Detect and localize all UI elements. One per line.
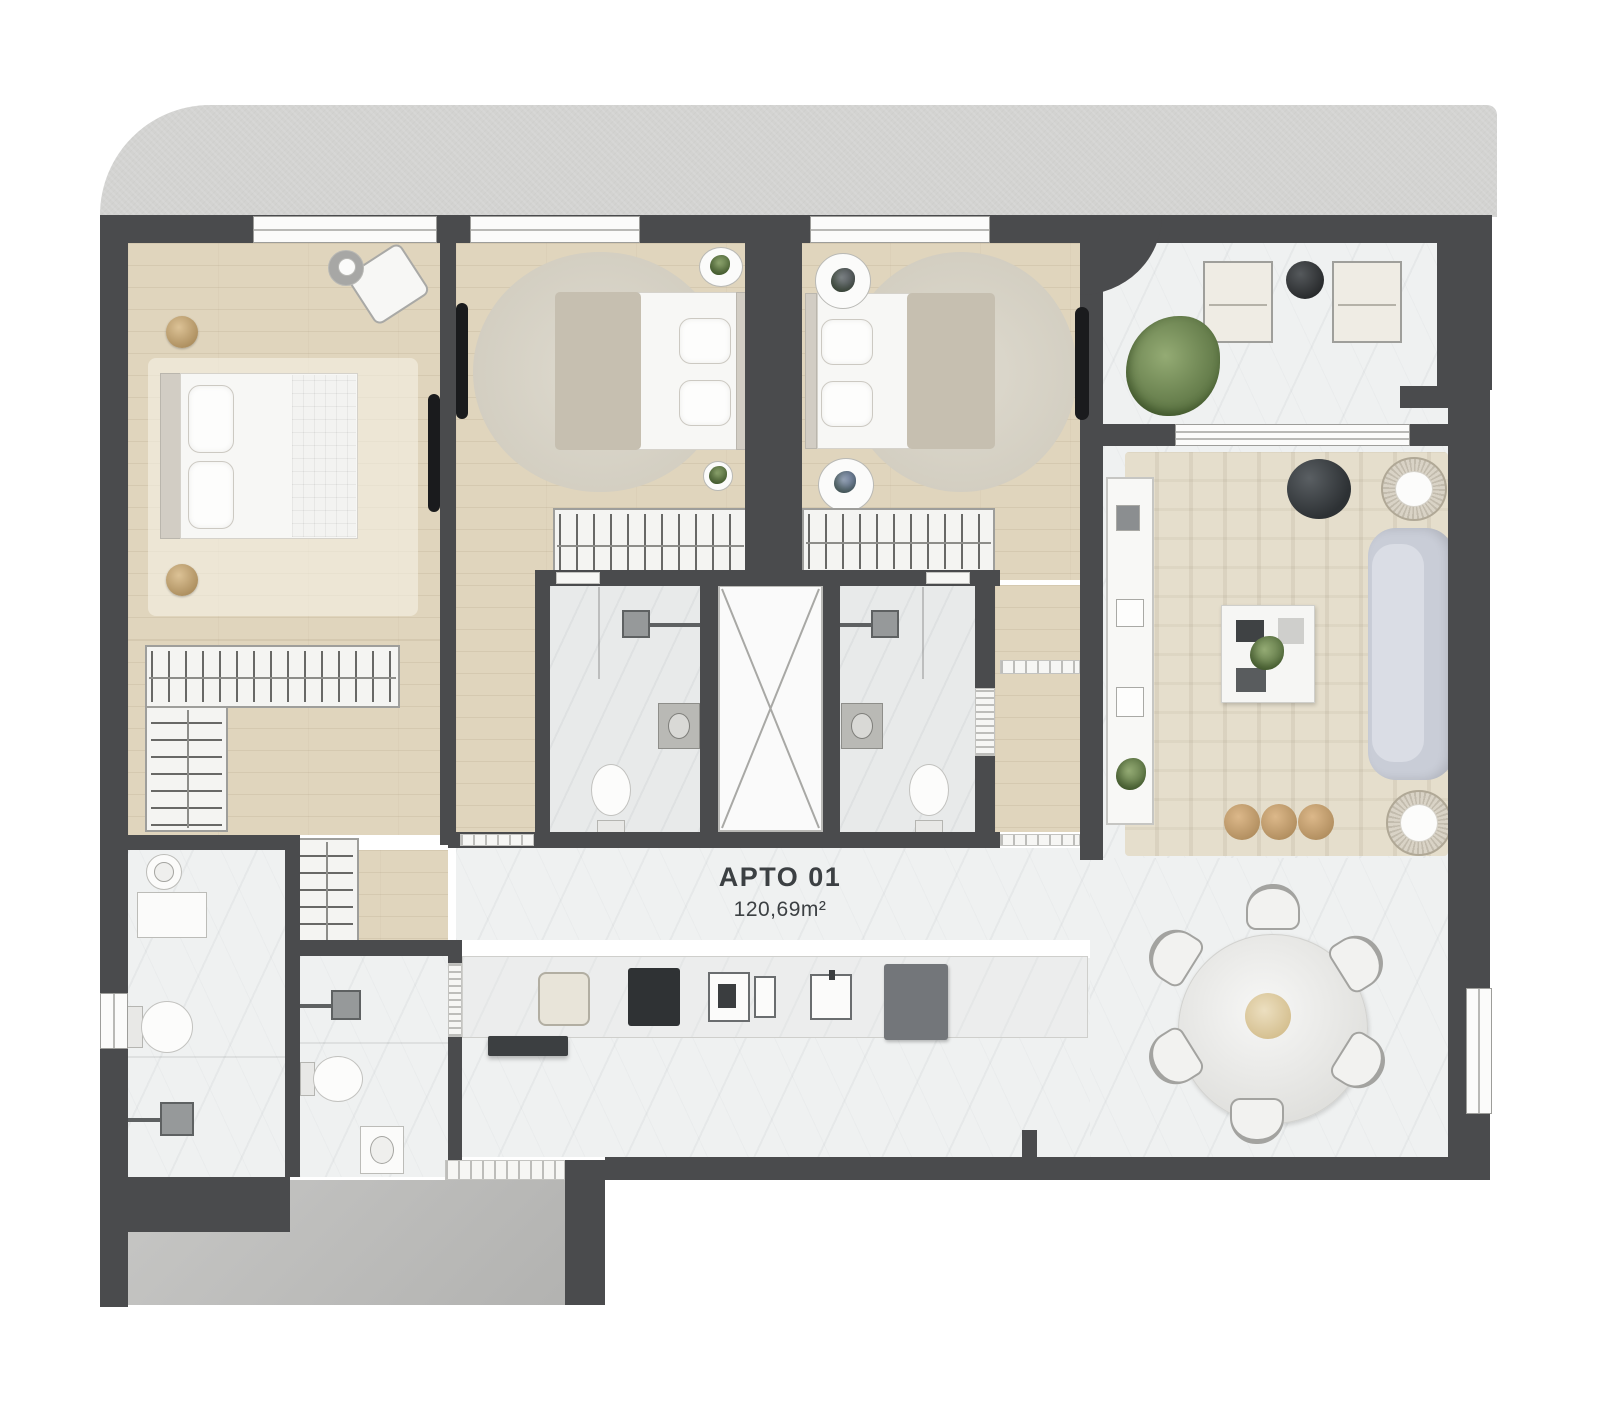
book-stack: [1236, 668, 1266, 692]
console-item: [1116, 505, 1140, 531]
pouf: [1298, 804, 1334, 840]
bedroom2-bed: [553, 292, 748, 450]
pillow: [188, 461, 234, 529]
balcony-side-table: [1286, 261, 1324, 299]
wall-balcony-right: [1437, 215, 1492, 390]
ensuite3-toilet: [906, 764, 952, 836]
bedroom3-wardrobe: [802, 508, 995, 575]
sink-bowl: [154, 862, 174, 882]
wall-kitchen-left-lower: [448, 1035, 462, 1177]
bed-blanket: [555, 292, 641, 450]
pillow: [679, 318, 731, 364]
bedroom2-passage-floor: [456, 585, 535, 832]
apartment-area: 120,69m²: [620, 898, 940, 922]
table-centerpiece: [1245, 993, 1291, 1039]
apartment-title: APTO 01: [620, 862, 940, 893]
pillow: [821, 319, 873, 365]
wall-masterbath-right: [285, 850, 300, 1177]
bedroom2-door-leaf: [456, 303, 468, 419]
wall-bathroom2-top: [290, 940, 462, 956]
ensuite2-vanity: [658, 703, 700, 749]
pillow: [188, 385, 234, 453]
shower-head-icon: [871, 610, 899, 638]
hanger-rail: [557, 545, 744, 547]
ensuite2-toilet: [588, 764, 634, 836]
bathroom2-door: [448, 963, 462, 1037]
seat-line: [1209, 304, 1267, 306]
console-frame: [1116, 687, 1144, 717]
wall-master-bedroom2: [440, 215, 456, 845]
kitchen-shelf: [488, 1036, 568, 1056]
sofa: [1368, 528, 1454, 780]
wall-masterbath-bottom: [108, 1177, 290, 1232]
hanger-rail: [326, 842, 328, 944]
sink-bowl: [370, 1136, 394, 1164]
shower-arm: [300, 1004, 335, 1008]
master-bath-window: [100, 993, 128, 1049]
sink-bowl: [668, 713, 690, 739]
master-bath-vanity: [137, 892, 207, 938]
ensuite3-vanity: [841, 703, 883, 749]
seat-line: [1338, 304, 1396, 306]
cooktop-icon: [628, 968, 680, 1026]
master-bed-quilt: [292, 375, 356, 537]
wall-shaft-left: [700, 570, 718, 848]
door-track: [1176, 438, 1409, 440]
closet-wardrobe-side: [145, 706, 228, 832]
hall-wardrobe: [293, 838, 359, 948]
ensuite2-door: [556, 572, 600, 584]
apartment-floor-plan: APTO 01 120,69m²: [0, 0, 1600, 1409]
bedroom2-door-threshold: [460, 834, 534, 846]
console-item: [1116, 599, 1144, 627]
balcony-armchair: [1332, 261, 1402, 343]
hanger-rail: [149, 677, 396, 679]
bed-blanket: [907, 293, 995, 449]
master-bedroom-window: [253, 216, 437, 243]
shaft-cross-icon: [718, 585, 823, 832]
shower-arm: [128, 1118, 164, 1122]
oven: [708, 972, 750, 1022]
hanger-rail: [187, 710, 189, 828]
shower-glass: [922, 587, 924, 679]
balcony-sliding-door: [1175, 424, 1410, 446]
side-table-top: [338, 258, 356, 276]
pouf: [1224, 804, 1260, 840]
closet-wardrobe-top: [145, 645, 400, 708]
small-appliance: [754, 976, 776, 1018]
accent-chair: [1287, 459, 1351, 519]
pouf: [1261, 804, 1297, 840]
shower-arm: [650, 623, 700, 627]
bathroom2-sink: [360, 1126, 404, 1174]
chair-cushion: [1395, 471, 1433, 507]
faucet-icon: [829, 970, 835, 980]
hanger-rail: [806, 542, 991, 544]
wall-bottom: [605, 1157, 1490, 1180]
shower-glass: [598, 587, 600, 679]
master-bed-headboard: [160, 373, 182, 539]
balcony-armchair: [1203, 261, 1273, 343]
wall-shaft-right: [823, 570, 840, 848]
toilet-bowl: [141, 1001, 193, 1053]
bed-mattress: [637, 292, 738, 450]
master-door-leaf: [428, 394, 440, 512]
shower-head-icon: [331, 990, 361, 1020]
dining-chair: [1246, 884, 1300, 930]
ensuite3-entry-door: [975, 688, 995, 756]
wall-left: [100, 215, 128, 1307]
wicker-chair: [1381, 457, 1447, 521]
shower-divider: [128, 1056, 285, 1058]
wall-door-jamb: [1022, 1130, 1037, 1157]
wall-service-right: [565, 1160, 605, 1305]
counter-stool: [538, 972, 590, 1026]
window-mullion: [471, 229, 639, 231]
bedroom3-bed: [805, 293, 995, 449]
window-mullion: [811, 229, 989, 231]
hall-door-threshold: [1000, 834, 1080, 846]
tray: [1278, 618, 1304, 644]
suite3-hall-floor: [995, 585, 1080, 832]
bedroom2-window: [470, 216, 640, 243]
ensuite3-door: [926, 572, 970, 584]
toilet-bowl: [591, 764, 631, 816]
wall-kitchen-left-upper: [448, 940, 462, 965]
wall-closet-bath: [103, 835, 300, 850]
service-door-threshold: [445, 1160, 565, 1180]
master-bed: [160, 373, 358, 539]
bathroom2-toilet: [300, 1056, 370, 1102]
sink-bowl: [851, 713, 873, 739]
pillow: [679, 380, 731, 426]
nightstand-lamp: [166, 316, 198, 348]
toilet-bowl: [909, 764, 949, 816]
window-mullion: [254, 229, 436, 231]
wall-bedroom2-bedroom3: [745, 215, 802, 585]
master-bath-toilet: [127, 998, 197, 1056]
wicker-chair: [1386, 790, 1452, 856]
shower-divider: [300, 1042, 448, 1044]
wall-ensuite2-left: [535, 570, 550, 848]
wall-balcony-stub-left: [1103, 424, 1175, 446]
bedroom3-window-bar: [1075, 307, 1089, 420]
nightstand-lamp: [166, 564, 198, 596]
window-mullion: [113, 994, 115, 1048]
wall-balcony-stub-right: [1410, 424, 1448, 446]
kitchen-sink: [810, 974, 852, 1020]
wall-step: [1400, 386, 1448, 408]
toilet-bowl: [313, 1056, 363, 1102]
dining-window: [1466, 988, 1492, 1114]
window-mullion: [1478, 989, 1480, 1113]
exterior-slab: [100, 105, 1497, 217]
master-bath-sink: [146, 854, 182, 890]
chair-cushion: [1400, 804, 1438, 842]
oven-door: [718, 984, 736, 1008]
shower-head-icon: [160, 1102, 194, 1136]
sofa-seat: [1372, 544, 1424, 762]
pillow: [821, 381, 873, 427]
bed-headboard: [805, 293, 817, 449]
shower-head-icon: [622, 610, 650, 638]
door-track: [1176, 431, 1409, 433]
refrigerator: [884, 964, 948, 1040]
bedroom3-window: [810, 216, 990, 243]
apartment-label: APTO 01 120,69m²: [620, 862, 940, 922]
hall-threshold: [1000, 660, 1080, 674]
